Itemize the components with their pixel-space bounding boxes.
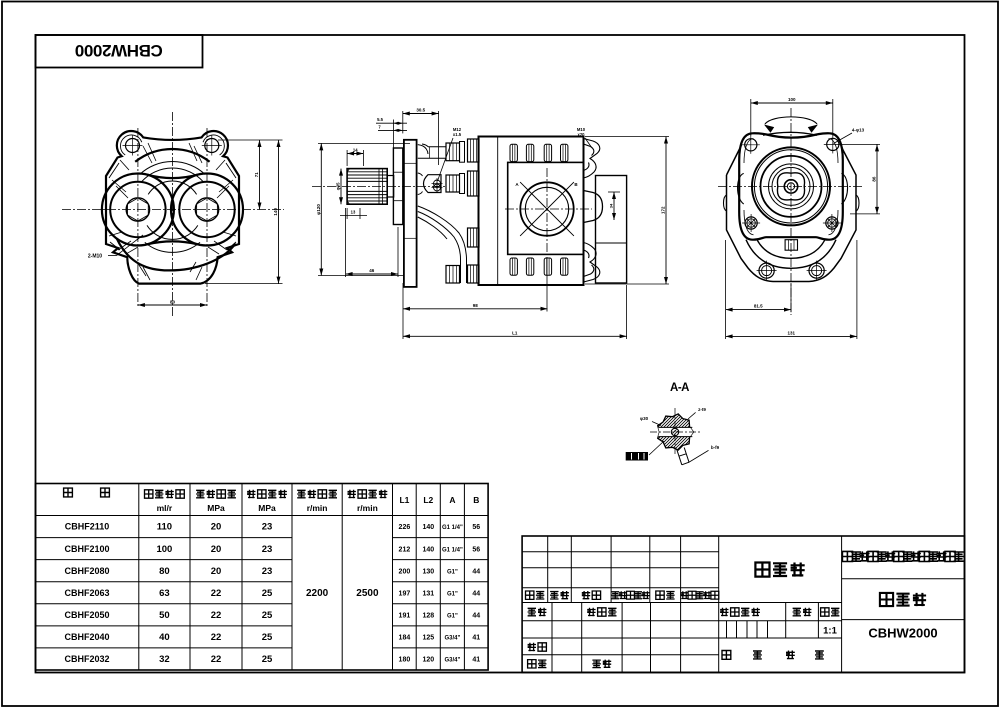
svg-text:22: 22 <box>211 610 222 621</box>
svg-text:25: 25 <box>262 632 273 643</box>
svg-text:23: 23 <box>262 522 273 533</box>
svg-text:2-M10: 2-M10 <box>88 254 102 260</box>
svg-text:G1": G1" <box>447 591 458 597</box>
svg-text:80: 80 <box>159 566 170 577</box>
svg-text:40: 40 <box>159 632 170 643</box>
svg-text:G1 1/4": G1 1/4" <box>442 525 463 531</box>
svg-text:b-f9: b-f9 <box>711 445 720 450</box>
svg-text:25: 25 <box>262 588 273 599</box>
svg-text:81.5: 81.5 <box>754 304 763 309</box>
svg-text:44: 44 <box>472 590 480 597</box>
svg-text:86: 86 <box>872 176 877 182</box>
svg-text:CBHF2110: CBHF2110 <box>65 522 110 532</box>
svg-text:128: 128 <box>422 613 434 620</box>
svg-text:CBHF2080: CBHF2080 <box>64 566 109 576</box>
svg-text:46: 46 <box>369 268 375 273</box>
svg-text:100: 100 <box>156 544 172 555</box>
svg-text:x20: x20 <box>578 132 586 137</box>
svg-text:1:1: 1:1 <box>823 626 837 637</box>
svg-text:41: 41 <box>472 635 480 642</box>
svg-text:23: 23 <box>262 566 273 577</box>
svg-text:32: 32 <box>159 654 170 665</box>
svg-text:G1 1/4": G1 1/4" <box>442 547 463 553</box>
svg-text:200: 200 <box>399 568 411 575</box>
svg-text:z-t9: z-t9 <box>698 407 706 412</box>
svg-text:CBHF2032: CBHF2032 <box>64 654 109 664</box>
svg-text:20: 20 <box>211 544 222 555</box>
svg-text:25: 25 <box>262 610 273 621</box>
svg-text:44: 44 <box>472 568 480 575</box>
svg-text:140: 140 <box>422 546 434 553</box>
svg-text:172: 172 <box>661 206 666 214</box>
svg-text:41: 41 <box>472 657 480 664</box>
svg-text:131: 131 <box>787 330 795 335</box>
svg-text:56: 56 <box>472 524 480 531</box>
svg-text:20: 20 <box>211 522 222 533</box>
svg-text:G3/4": G3/4" <box>444 636 460 642</box>
svg-text:22: 22 <box>211 654 222 665</box>
svg-text:CBHF2040: CBHF2040 <box>64 632 109 642</box>
svg-text:CBHW2000: CBHW2000 <box>75 41 163 60</box>
svg-text:120: 120 <box>422 657 434 664</box>
svg-text:G1": G1" <box>447 614 458 620</box>
svg-text:191: 191 <box>399 613 411 620</box>
svg-text:197: 197 <box>399 590 411 597</box>
svg-text:80: 80 <box>170 300 176 305</box>
svg-text:ml/r: ml/r <box>157 503 173 513</box>
svg-text:φ120: φ120 <box>316 204 321 215</box>
svg-text:CBHW2000: CBHW2000 <box>868 626 937 641</box>
svg-text:226: 226 <box>399 524 411 531</box>
svg-text:φ30: φ30 <box>640 416 649 421</box>
svg-text:CBHF2063: CBHF2063 <box>64 588 109 598</box>
svg-text:A-A: A-A <box>670 382 689 394</box>
svg-text:34: 34 <box>609 203 614 208</box>
svg-text:φ35: φ35 <box>336 182 341 190</box>
svg-text:125: 125 <box>422 635 434 642</box>
svg-text:r/min: r/min <box>307 503 328 513</box>
svg-text:63: 63 <box>159 588 170 599</box>
svg-text:23: 23 <box>262 544 273 555</box>
svg-text:212: 212 <box>399 546 411 553</box>
svg-text:L1: L1 <box>399 495 409 505</box>
svg-text:30.5: 30.5 <box>416 108 425 113</box>
svg-text:2200: 2200 <box>306 588 329 599</box>
svg-text:131: 131 <box>422 590 434 597</box>
svg-text:5.5: 5.5 <box>377 117 383 122</box>
svg-text:184: 184 <box>399 635 411 642</box>
svg-text:L2: L2 <box>423 495 433 505</box>
svg-text:20: 20 <box>211 566 222 577</box>
svg-text:71: 71 <box>254 172 259 178</box>
svg-text:4-φ13: 4-φ13 <box>852 128 865 133</box>
svg-text:98: 98 <box>473 303 479 308</box>
svg-text:25: 25 <box>262 654 273 665</box>
svg-text:14: 14 <box>353 148 358 153</box>
svg-text:MPa: MPa <box>258 503 276 513</box>
svg-text:r/min: r/min <box>357 503 378 513</box>
svg-text:130: 130 <box>422 568 434 575</box>
svg-text:G1": G1" <box>447 569 458 575</box>
svg-text:100: 100 <box>788 97 796 102</box>
svg-text:180: 180 <box>399 657 411 664</box>
svg-text:G3/4": G3/4" <box>444 658 460 664</box>
svg-text:CBHF2100: CBHF2100 <box>64 544 109 554</box>
svg-text:CBHF2050: CBHF2050 <box>64 610 109 620</box>
svg-text:MPa: MPa <box>207 503 225 513</box>
svg-text:140: 140 <box>422 524 434 531</box>
svg-text:B: B <box>473 495 479 505</box>
svg-text:2500: 2500 <box>356 588 379 599</box>
svg-text:44: 44 <box>472 613 480 620</box>
svg-text:22: 22 <box>211 588 222 599</box>
svg-text:140: 140 <box>273 208 278 216</box>
svg-text:13: 13 <box>351 210 356 215</box>
svg-text:x1.5: x1.5 <box>453 132 462 137</box>
svg-text:A: A <box>449 495 455 505</box>
svg-text:50: 50 <box>159 610 170 621</box>
svg-text:22: 22 <box>211 632 222 643</box>
svg-text:56: 56 <box>472 546 480 553</box>
svg-text:L1: L1 <box>512 330 518 335</box>
svg-text:110: 110 <box>157 522 172 533</box>
